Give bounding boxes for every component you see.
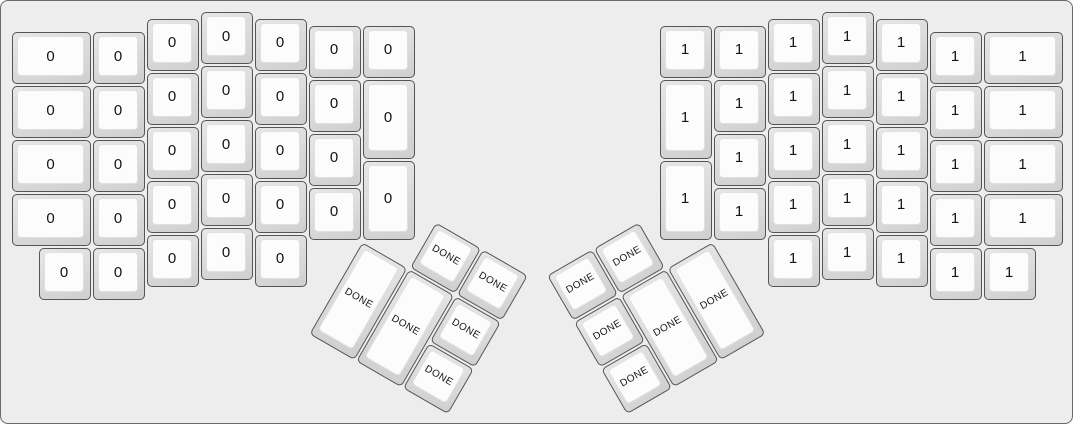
key-left-main-27[interactable]: 0 xyxy=(39,248,91,300)
key-legend: 1 xyxy=(897,197,905,212)
key-legend: 1 xyxy=(951,157,959,172)
key-legend: 0 xyxy=(60,265,68,280)
key-legend: 1 xyxy=(789,35,797,50)
key-left-main-30[interactable]: 0 xyxy=(201,228,253,280)
key-legend: 0 xyxy=(114,103,122,118)
key-left-main-18[interactable]: 0 xyxy=(255,127,307,179)
keytop: DONE xyxy=(600,229,655,284)
key-left-main-21[interactable]: 0 xyxy=(12,194,91,246)
key-legend: 1 xyxy=(843,245,851,260)
key-left-main-3[interactable]: 0 xyxy=(201,12,253,64)
key-legend: 0 xyxy=(222,29,230,44)
key-left-main-0[interactable]: 0 xyxy=(12,32,91,84)
key-legend: DONE xyxy=(430,243,462,267)
key-right-main-25[interactable]: 1 xyxy=(930,194,982,246)
keytop: 0 xyxy=(206,16,246,56)
key-right-main-15[interactable]: 1 xyxy=(714,134,766,186)
key-legend: 0 xyxy=(276,251,284,266)
keytop: 0 xyxy=(314,84,354,124)
key-legend: 0 xyxy=(384,110,392,125)
key-legend: DONE xyxy=(450,317,482,341)
key-left-main-24[interactable]: 0 xyxy=(201,174,253,226)
key-legend: 0 xyxy=(330,204,338,219)
keytop: 1 xyxy=(773,77,813,117)
key-legend: 0 xyxy=(276,143,284,158)
key-left-main-29[interactable]: 0 xyxy=(147,235,199,287)
key-legend: DONE xyxy=(592,318,624,342)
key-left-main-7[interactable]: 0 xyxy=(12,86,91,138)
keytop: 0 xyxy=(314,192,354,232)
keytop: 0 xyxy=(17,90,84,130)
keytop: 0 xyxy=(260,239,300,279)
key-legend: 1 xyxy=(897,89,905,104)
key-right-main-20[interactable]: 1 xyxy=(984,140,1063,192)
key-legend: 1 xyxy=(843,29,851,44)
key-right-main-19[interactable]: 1 xyxy=(930,140,982,192)
key-legend: 0 xyxy=(276,35,284,50)
key-right-main-31[interactable]: 1 xyxy=(984,248,1036,300)
keytop: 0 xyxy=(17,198,84,238)
keytop: 1 xyxy=(827,124,867,164)
key-legend: 0 xyxy=(276,89,284,104)
key-left-main-19[interactable]: 0 xyxy=(309,134,361,186)
keytop: 0 xyxy=(152,185,192,225)
keytop: 1 xyxy=(827,70,867,110)
keytop: 0 xyxy=(260,131,300,171)
keytop: 0 xyxy=(206,232,246,272)
key-left-main-6[interactable]: 0 xyxy=(363,26,415,78)
keytop: 1 xyxy=(773,239,813,279)
keytop: 1 xyxy=(773,185,813,225)
keytop: 1 xyxy=(827,178,867,218)
key-right-main-14[interactable]: 1 xyxy=(660,161,712,240)
keytop: 0 xyxy=(206,124,246,164)
keytop: 1 xyxy=(773,23,813,63)
keytop: DONE xyxy=(553,256,608,311)
keytop: 0 xyxy=(368,30,408,70)
key-left-main-20[interactable]: 0 xyxy=(363,161,415,240)
key-legend: 0 xyxy=(114,211,122,226)
key-legend: 1 xyxy=(951,49,959,64)
key-legend: 1 xyxy=(1018,211,1026,226)
key-legend: 1 xyxy=(951,103,959,118)
key-right-main-17[interactable]: 1 xyxy=(822,120,874,172)
key-right-main-28[interactable]: 1 xyxy=(822,228,874,280)
key-legend: 0 xyxy=(330,150,338,165)
key-right-main-21[interactable]: 1 xyxy=(714,188,766,240)
keytop: 1 xyxy=(719,84,759,124)
key-left-main-31[interactable]: 0 xyxy=(255,235,307,287)
keytop: 0 xyxy=(260,77,300,117)
keytop: 0 xyxy=(17,144,84,184)
key-legend: DONE xyxy=(423,364,455,388)
key-left-main-14[interactable]: 0 xyxy=(12,140,91,192)
key-right-main-5[interactable]: 1 xyxy=(930,32,982,84)
key-legend: 1 xyxy=(1005,265,1013,280)
key-right-main-7[interactable]: 1 xyxy=(660,80,712,159)
key-right-main-12[interactable]: 1 xyxy=(930,86,982,138)
key-legend: 0 xyxy=(330,42,338,57)
key-right-main-4[interactable]: 1 xyxy=(876,19,928,71)
keytop: 0 xyxy=(98,198,138,238)
key-right-main-6[interactable]: 1 xyxy=(984,32,1063,84)
key-right-main-10[interactable]: 1 xyxy=(822,66,874,118)
key-right-main-13[interactable]: 1 xyxy=(984,86,1063,138)
key-legend: 1 xyxy=(1018,157,1026,172)
key-left-main-16[interactable]: 0 xyxy=(147,127,199,179)
key-legend: 1 xyxy=(897,143,905,158)
key-left-main-10[interactable]: 0 xyxy=(201,66,253,118)
key-right-main-1[interactable]: 1 xyxy=(714,26,766,78)
keytop: DONE xyxy=(418,228,473,283)
keytop: 0 xyxy=(152,77,192,117)
keytop: 1 xyxy=(935,90,975,130)
keytop: 1 xyxy=(665,84,705,151)
key-right-main-29[interactable]: 1 xyxy=(876,235,928,287)
key-legend: 0 xyxy=(114,157,122,172)
keytop: 1 xyxy=(989,252,1029,292)
keytop: 1 xyxy=(719,30,759,70)
key-right-main-0[interactable]: 1 xyxy=(660,26,712,78)
keytop: 0 xyxy=(44,252,84,292)
key-right-main-18[interactable]: 1 xyxy=(876,127,928,179)
key-right-main-26[interactable]: 1 xyxy=(984,194,1063,246)
key-legend: 1 xyxy=(1018,49,1026,64)
key-legend: 0 xyxy=(384,42,392,57)
keytop: 1 xyxy=(881,185,921,225)
keytop: 1 xyxy=(827,232,867,272)
key-legend: 0 xyxy=(114,49,122,64)
key-left-main-15[interactable]: 0 xyxy=(93,140,145,192)
key-legend: 0 xyxy=(222,83,230,98)
key-legend: 0 xyxy=(46,211,54,226)
keytop: 1 xyxy=(881,23,921,63)
key-legend: 1 xyxy=(735,204,743,219)
key-legend: 1 xyxy=(951,211,959,226)
key-right-main-27[interactable]: 1 xyxy=(768,235,820,287)
keytop: 1 xyxy=(719,192,759,232)
keytop: 1 xyxy=(881,131,921,171)
keyboard-canvas: 0000000000000000000000000000000011111111… xyxy=(0,0,1073,424)
key-legend: 0 xyxy=(168,143,176,158)
key-legend: DONE xyxy=(699,287,731,311)
key-legend: 1 xyxy=(897,35,905,50)
key-left-main-17[interactable]: 0 xyxy=(201,120,253,172)
key-right-main-16[interactable]: 1 xyxy=(768,127,820,179)
keytop: 1 xyxy=(989,90,1056,130)
keytop: 1 xyxy=(935,36,975,76)
keytop: 0 xyxy=(98,36,138,76)
key-left-main-5[interactable]: 0 xyxy=(309,26,361,78)
key-right-main-22[interactable]: 1 xyxy=(768,181,820,233)
keytop: 0 xyxy=(314,30,354,70)
key-legend: 1 xyxy=(681,191,689,206)
keytop: 1 xyxy=(881,239,921,279)
key-legend: 1 xyxy=(735,150,743,165)
key-right-main-11[interactable]: 1 xyxy=(876,73,928,125)
key-left-main-12[interactable]: 0 xyxy=(309,80,361,132)
key-right-main-9[interactable]: 1 xyxy=(768,73,820,125)
key-left-main-23[interactable]: 0 xyxy=(147,181,199,233)
keytop: 1 xyxy=(827,16,867,56)
keytop: 1 xyxy=(935,198,975,238)
key-right-main-30[interactable]: 1 xyxy=(930,248,982,300)
key-right-main-2[interactable]: 1 xyxy=(768,19,820,71)
keytop: 1 xyxy=(719,138,759,178)
keytop: 1 xyxy=(935,252,975,292)
key-left-main-13[interactable]: 0 xyxy=(363,80,415,159)
keytop: 0 xyxy=(206,70,246,110)
key-legend: DONE xyxy=(477,270,509,294)
keytop: 1 xyxy=(989,36,1056,76)
keytop: 0 xyxy=(98,90,138,130)
key-right-main-3[interactable]: 1 xyxy=(822,12,874,64)
key-left-main-8[interactable]: 0 xyxy=(93,86,145,138)
key-legend: 1 xyxy=(789,89,797,104)
keytop: 1 xyxy=(989,198,1056,238)
key-legend: 1 xyxy=(843,83,851,98)
key-left-main-4[interactable]: 0 xyxy=(255,19,307,71)
keytop: 0 xyxy=(368,84,408,151)
key-legend: 1 xyxy=(843,191,851,206)
keytop: 1 xyxy=(665,165,705,232)
keytop: 0 xyxy=(152,23,192,63)
key-left-main-22[interactable]: 0 xyxy=(93,194,145,246)
key-legend: 1 xyxy=(951,265,959,280)
key-legend: 0 xyxy=(46,49,54,64)
key-legend: 1 xyxy=(735,42,743,57)
key-legend: 1 xyxy=(681,110,689,125)
keytop: DONE xyxy=(465,255,520,310)
keytop: 0 xyxy=(260,23,300,63)
key-legend: 1 xyxy=(789,251,797,266)
key-legend: 1 xyxy=(681,42,689,57)
keytop: 0 xyxy=(98,144,138,184)
key-legend: 0 xyxy=(168,197,176,212)
keytop: 0 xyxy=(17,36,84,76)
keytop: 1 xyxy=(935,144,975,184)
keytop: 0 xyxy=(314,138,354,178)
key-left-main-28[interactable]: 0 xyxy=(93,248,145,300)
key-legend: DONE xyxy=(612,244,644,268)
key-legend: 0 xyxy=(222,137,230,152)
key-legend: 1 xyxy=(897,251,905,266)
key-left-main-11[interactable]: 0 xyxy=(255,73,307,125)
key-left-main-9[interactable]: 0 xyxy=(147,73,199,125)
key-left-main-2[interactable]: 0 xyxy=(147,19,199,71)
key-legend: 1 xyxy=(789,197,797,212)
key-legend: DONE xyxy=(565,271,597,295)
keytop: 0 xyxy=(98,252,138,292)
key-legend: 0 xyxy=(384,191,392,206)
key-legend: 0 xyxy=(168,89,176,104)
keytop: 1 xyxy=(989,144,1056,184)
key-legend: 0 xyxy=(168,35,176,50)
keytop: 1 xyxy=(881,77,921,117)
key-legend: 0 xyxy=(46,103,54,118)
key-legend: 1 xyxy=(735,96,743,111)
key-legend: 1 xyxy=(789,143,797,158)
key-right-main-23[interactable]: 1 xyxy=(822,174,874,226)
key-legend: DONE xyxy=(652,314,684,338)
key-left-main-1[interactable]: 0 xyxy=(93,32,145,84)
key-legend: DONE xyxy=(343,286,375,310)
key-legend: 0 xyxy=(46,157,54,172)
key-legend: 0 xyxy=(114,265,122,280)
keytop: 0 xyxy=(368,165,408,232)
key-legend: 0 xyxy=(222,245,230,260)
key-legend: 0 xyxy=(276,197,284,212)
keytop: 1 xyxy=(665,30,705,70)
key-right-main-8[interactable]: 1 xyxy=(714,80,766,132)
keytop: 1 xyxy=(773,131,813,171)
key-legend: 0 xyxy=(168,251,176,266)
keytop: 0 xyxy=(206,178,246,218)
key-legend: 0 xyxy=(222,191,230,206)
keytop: 0 xyxy=(152,239,192,279)
key-legend: DONE xyxy=(389,313,421,337)
keytop: 0 xyxy=(152,131,192,171)
key-left-main-26[interactable]: 0 xyxy=(309,188,361,240)
key-right-main-24[interactable]: 1 xyxy=(876,181,928,233)
key-legend: 1 xyxy=(843,137,851,152)
key-legend: 1 xyxy=(1018,103,1026,118)
key-legend: DONE xyxy=(619,365,651,389)
key-left-main-25[interactable]: 0 xyxy=(255,181,307,233)
key-legend: 0 xyxy=(330,96,338,111)
keytop: 0 xyxy=(260,185,300,225)
